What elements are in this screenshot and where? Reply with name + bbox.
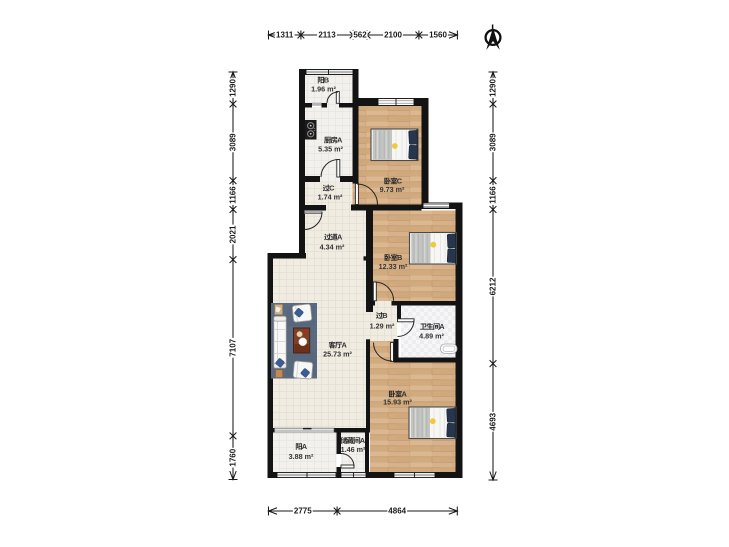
svg-text:2775: 2775 xyxy=(294,507,312,516)
svg-text:4.89 m²: 4.89 m² xyxy=(419,332,444,341)
svg-text:9.73 m²: 9.73 m² xyxy=(380,185,405,194)
svg-text:2021: 2021 xyxy=(229,225,238,243)
svg-text:B: B xyxy=(382,311,387,320)
svg-text:15.93 m²: 15.93 m² xyxy=(383,398,412,407)
svg-text:A: A xyxy=(302,442,308,451)
svg-text:7107: 7107 xyxy=(229,338,238,356)
svg-text:2113: 2113 xyxy=(318,31,336,40)
svg-text:1166: 1166 xyxy=(489,186,498,204)
svg-text:2100: 2100 xyxy=(384,31,402,40)
svg-text:C: C xyxy=(329,184,335,193)
svg-text:4693: 4693 xyxy=(489,412,498,430)
svg-text:3089: 3089 xyxy=(229,133,238,151)
svg-text:4864: 4864 xyxy=(388,507,406,516)
svg-text:1.29 m²: 1.29 m² xyxy=(370,322,395,331)
svg-text:562: 562 xyxy=(353,31,367,40)
svg-text:1560: 1560 xyxy=(429,31,447,40)
svg-text:1311: 1311 xyxy=(276,31,294,40)
svg-text:1.96 m²: 1.96 m² xyxy=(311,85,336,94)
svg-text:1290: 1290 xyxy=(489,79,498,97)
svg-text:4.34 m²: 4.34 m² xyxy=(320,243,345,252)
svg-text:3.88 m²: 3.88 m² xyxy=(289,452,314,461)
svg-text:1290: 1290 xyxy=(229,79,238,97)
svg-text:B: B xyxy=(324,76,329,85)
svg-text:A: A xyxy=(337,233,343,242)
svg-text:1760: 1760 xyxy=(229,448,238,466)
svg-text:A: A xyxy=(439,322,445,331)
svg-text:1.74 m²: 1.74 m² xyxy=(318,193,343,202)
svg-text:1166: 1166 xyxy=(229,186,238,204)
svg-text:1.46 m²: 1.46 m² xyxy=(341,445,366,454)
svg-text:6212: 6212 xyxy=(489,277,498,295)
svg-text:5.35 m²: 5.35 m² xyxy=(318,145,343,154)
svg-text:B: B xyxy=(397,253,402,262)
svg-text:25.73 m²: 25.73 m² xyxy=(323,350,352,359)
svg-text:A: A xyxy=(360,436,366,445)
svg-text:3089: 3089 xyxy=(489,133,498,151)
svg-text:12.33 m²: 12.33 m² xyxy=(379,262,408,271)
svg-text:A: A xyxy=(337,136,343,145)
svg-text:A: A xyxy=(342,341,348,350)
